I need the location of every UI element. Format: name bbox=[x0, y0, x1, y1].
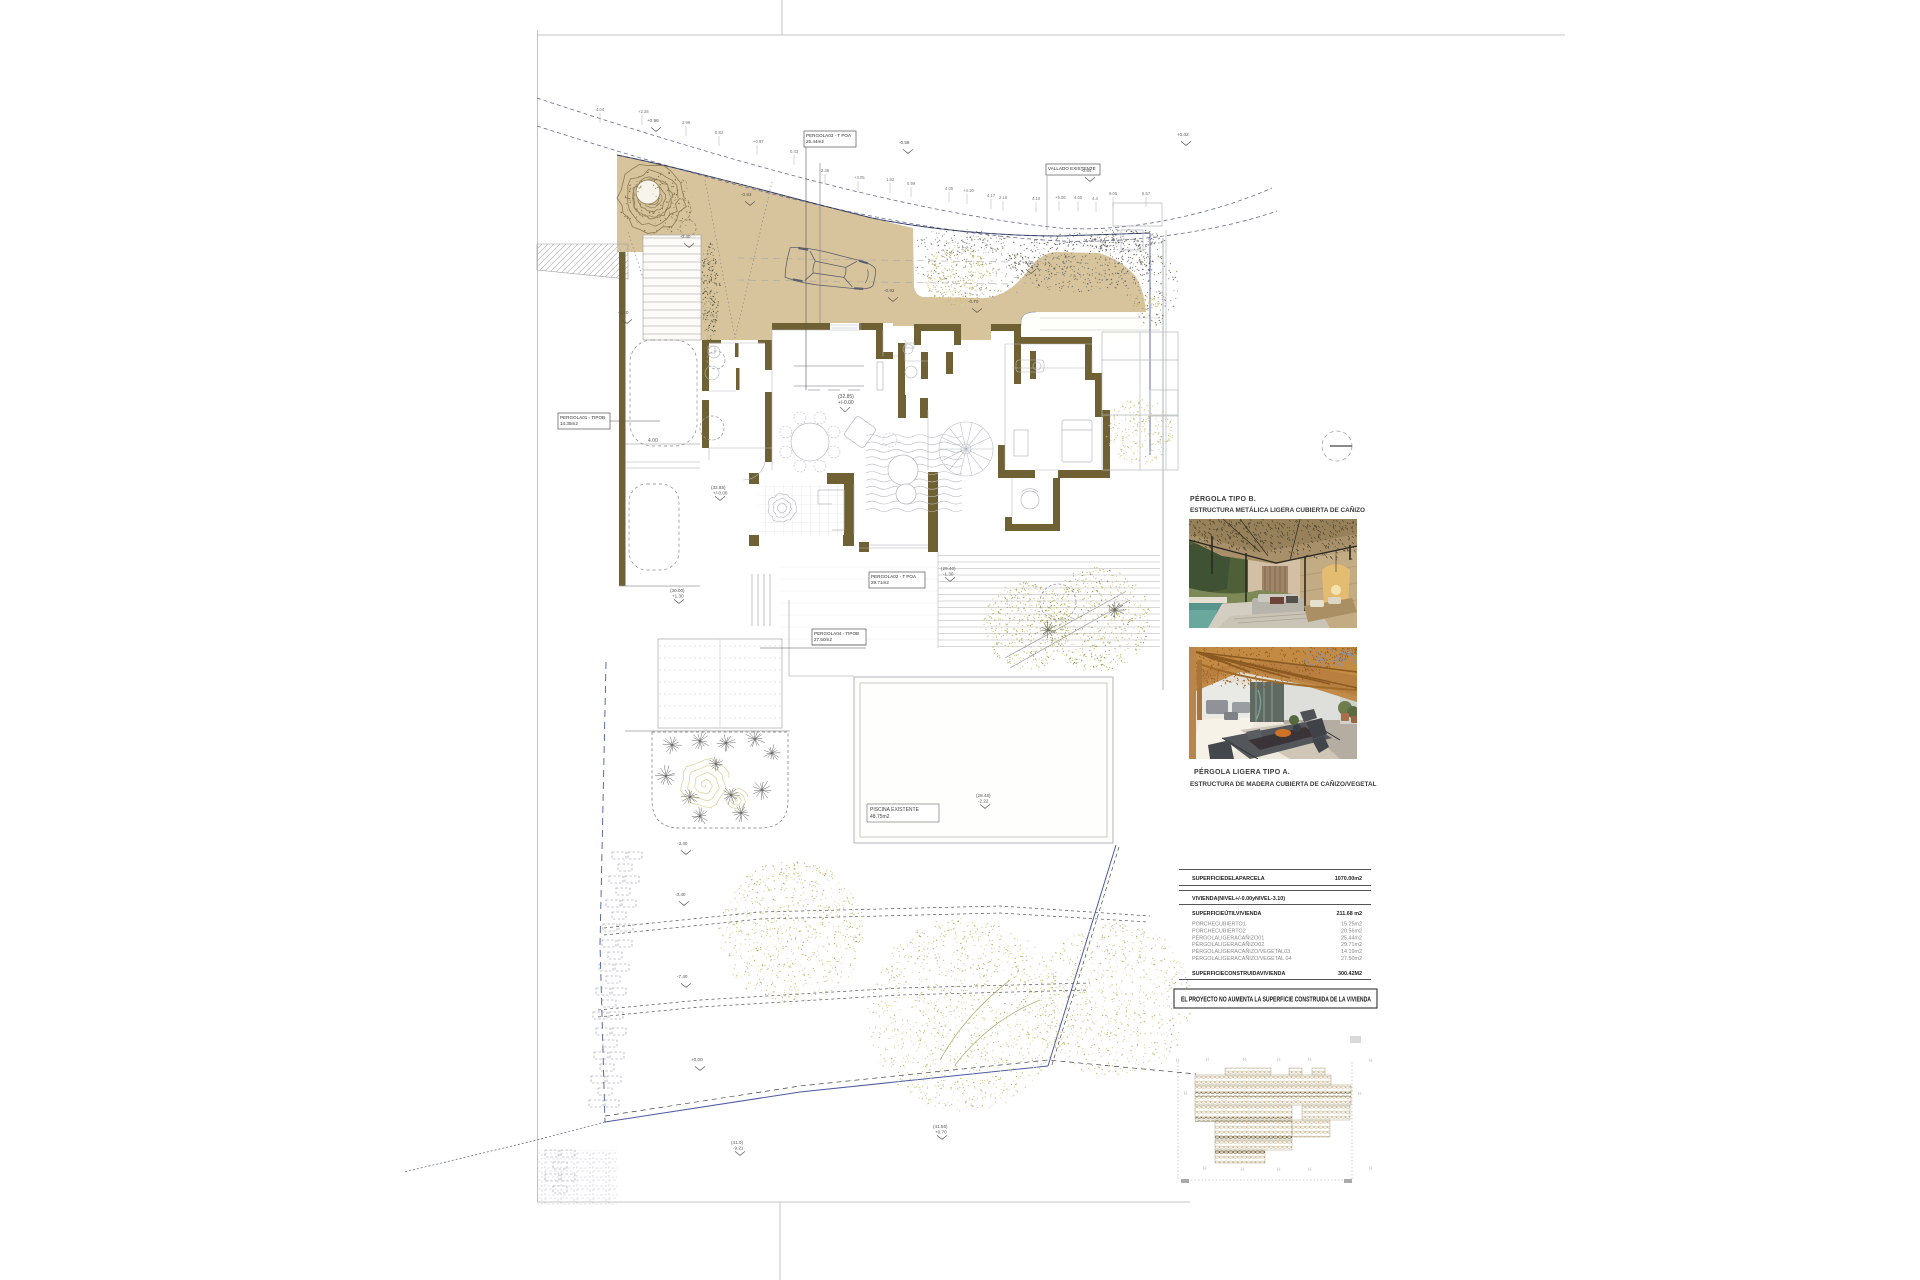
svg-text:SUPERFICIEDELAPARCELA: SUPERFICIEDELAPARCELA bbox=[1192, 876, 1265, 882]
svg-text:+0.05: +0.05 bbox=[1022, 260, 1034, 265]
svg-text:+0.00: +0.00 bbox=[691, 1057, 703, 1062]
svg-text:|-|: |-| bbox=[1203, 1165, 1206, 1170]
svg-text:2.96: 2.96 bbox=[682, 120, 691, 125]
svg-text:(41.55): (41.55) bbox=[933, 1124, 948, 1129]
svg-text:-9.21: -9.21 bbox=[733, 1145, 744, 1150]
svg-text:EL PROYECTO NO AUMENTA LA SUPE: EL PROYECTO NO AUMENTA LA SUPERFICIE CON… bbox=[1181, 997, 1371, 1004]
svg-text:(41.0): (41.0) bbox=[731, 1140, 743, 1145]
svg-text:-3.40: -3.40 bbox=[675, 892, 686, 897]
svg-text:PERGOLA01 - TIPOB: PERGOLA01 - TIPOB bbox=[560, 415, 605, 420]
svg-text:4.10: 4.10 bbox=[1032, 196, 1041, 201]
svg-text:+0.97: +0.97 bbox=[753, 139, 764, 144]
svg-text:27.50m2: 27.50m2 bbox=[1341, 956, 1362, 962]
svg-text:(28.48): (28.48) bbox=[976, 793, 991, 798]
svg-text:9.05: 9.05 bbox=[1109, 191, 1118, 196]
svg-text:+/-0.00: +/-0.00 bbox=[713, 490, 728, 495]
svg-text:15.25m2: 15.25m2 bbox=[1341, 922, 1362, 928]
svg-text:ESTRUCTURA DE MADERA CUBIERTA: ESTRUCTURA DE MADERA CUBIERTA DE CAÑIZO/… bbox=[1190, 779, 1377, 788]
svg-text:0.99: 0.99 bbox=[907, 181, 916, 186]
svg-text:1070.00m2: 1070.00m2 bbox=[1335, 876, 1362, 882]
svg-text:+1.30: +1.30 bbox=[672, 593, 684, 598]
svg-text:0.43: 0.43 bbox=[790, 149, 799, 154]
svg-text:29.71m2: 29.71m2 bbox=[1341, 942, 1362, 948]
svg-text:-0.53: -0.53 bbox=[741, 192, 752, 197]
svg-text:+4.05: +4.05 bbox=[854, 175, 865, 180]
svg-text:SUPERFICIEÚTILVIVIENDA: SUPERFICIEÚTILVIVIENDA bbox=[1192, 910, 1261, 917]
svg-text:48.75m2: 48.75m2 bbox=[870, 814, 890, 820]
svg-text:4.17: 4.17 bbox=[987, 193, 996, 198]
svg-text:|-|: |-| bbox=[1369, 1057, 1372, 1062]
svg-text:(29.40): (29.40) bbox=[941, 566, 956, 571]
svg-text:PERGOLA02 - T POA: PERGOLA02 - T POA bbox=[871, 574, 917, 579]
svg-text:PÉRGOLALIGERACAÑIZO01: PÉRGOLALIGERACAÑIZO01 bbox=[1192, 934, 1264, 941]
svg-text:-0.58: -0.58 bbox=[899, 140, 910, 145]
svg-text:+0.70: +0.70 bbox=[935, 1129, 947, 1134]
svg-text:+0.96: +0.96 bbox=[647, 118, 659, 123]
svg-text:PÉRGOLA TIPO B.: PÉRGOLA TIPO B. bbox=[1190, 494, 1256, 503]
svg-text:|-|: |-| bbox=[1206, 1056, 1209, 1061]
svg-text:2.16: 2.16 bbox=[999, 195, 1008, 200]
svg-text:27.50m2: 27.50m2 bbox=[814, 637, 832, 642]
svg-text:-1.30: -1.30 bbox=[943, 571, 954, 576]
svg-text:|-|: |-| bbox=[1243, 1056, 1246, 1061]
svg-text:|-|: |-| bbox=[1241, 1166, 1244, 1171]
svg-text:-0.54: -0.54 bbox=[1081, 168, 1092, 173]
svg-text:211.68 m2: 211.68 m2 bbox=[1337, 911, 1362, 917]
svg-text:PÉRGOLALIGERACAÑIZO/VEGETAL 04: PÉRGOLALIGERACAÑIZO/VEGETAL 04 bbox=[1192, 955, 1291, 962]
svg-text:300.42M2: 300.42M2 bbox=[1338, 971, 1362, 977]
svg-text:PORCHECUBIERTO1: PORCHECUBIERTO1 bbox=[1192, 922, 1246, 928]
svg-text:6.57: 6.57 bbox=[1142, 191, 1151, 196]
svg-text:PORCHECUBIERTO2: PORCHECUBIERTO2 bbox=[1192, 928, 1246, 934]
svg-text:-7.40: -7.40 bbox=[677, 974, 688, 979]
svg-text:PERGOLA04 - TIPOB: PERGOLA04 - TIPOB bbox=[814, 631, 859, 636]
svg-text:4.04: 4.04 bbox=[596, 107, 605, 112]
svg-text:25.44m2: 25.44m2 bbox=[806, 139, 824, 144]
svg-text:+2.28: +2.28 bbox=[638, 109, 649, 114]
svg-text:0.82: 0.82 bbox=[715, 130, 724, 135]
svg-text:-0.92: -0.92 bbox=[884, 288, 895, 293]
svg-text:|-|: |-| bbox=[1358, 1090, 1361, 1095]
svg-text:-0.70: -0.70 bbox=[968, 299, 979, 304]
svg-text:|-|: |-| bbox=[1184, 1090, 1187, 1095]
svg-text:-0.30: -0.30 bbox=[618, 310, 629, 315]
svg-text:PÉRGOLALIGERACAÑIZO/VEGETAL03: PÉRGOLALIGERACAÑIZO/VEGETAL03 bbox=[1192, 948, 1290, 955]
svg-text:PÉRGOLALIGERACAÑIZO02: PÉRGOLALIGERACAÑIZO02 bbox=[1192, 941, 1264, 948]
svg-text:+0.02: +0.02 bbox=[1177, 132, 1189, 137]
svg-text:(32.85): (32.85) bbox=[711, 485, 726, 490]
svg-text:+4.10: +4.10 bbox=[963, 188, 974, 193]
svg-text:|-|: |-| bbox=[1308, 1056, 1311, 1061]
svg-text:(30.00): (30.00) bbox=[670, 588, 685, 593]
svg-text:|-|: |-| bbox=[1176, 1057, 1179, 1062]
svg-text:VIVIENDA(NIVEL+/-0.00yNIVEL-3.: VIVIENDA(NIVEL+/-0.00yNIVEL-3.10) bbox=[1192, 896, 1285, 902]
svg-text:PÉRGOLA LIGERA TIPO A.: PÉRGOLA LIGERA TIPO A. bbox=[1194, 767, 1290, 776]
svg-text:+/-0.00: +/-0.00 bbox=[838, 400, 854, 406]
svg-text:PERGOLA03 - T POA: PERGOLA03 - T POA bbox=[806, 133, 852, 138]
svg-text:4.4: 4.4 bbox=[1092, 196, 1098, 201]
svg-text:PISCINA EXISTENTE: PISCINA EXISTENTE bbox=[870, 807, 920, 813]
svg-text:14.35m2: 14.35m2 bbox=[560, 421, 578, 426]
svg-text:|-|: |-| bbox=[1308, 1166, 1311, 1171]
svg-text:ESTRUCTURA METÁLICA LIGERA CUB: ESTRUCTURA METÁLICA LIGERA CUBIERTA DE C… bbox=[1190, 505, 1365, 514]
svg-text:SUPERFICIECONSTRUIDAVIVIENDA: SUPERFICIECONSTRUIDAVIVIENDA bbox=[1192, 971, 1285, 977]
svg-text:|-|: |-| bbox=[1369, 1165, 1372, 1170]
svg-text:|-|: |-| bbox=[1277, 1056, 1280, 1061]
svg-text:-3.40: -3.40 bbox=[677, 841, 688, 846]
svg-text:4.60: 4.60 bbox=[1074, 195, 1083, 200]
svg-text:20.56m2: 20.56m2 bbox=[1341, 928, 1362, 934]
svg-text:29.71m2: 29.71m2 bbox=[871, 580, 889, 585]
svg-text:4.05: 4.05 bbox=[945, 186, 954, 191]
svg-text:14.19m2: 14.19m2 bbox=[1341, 949, 1362, 955]
svg-text:1.82: 1.82 bbox=[886, 177, 895, 182]
svg-text:2.38: 2.38 bbox=[821, 168, 830, 173]
svg-text:|-|: |-| bbox=[1277, 1166, 1280, 1171]
svg-text:+5.06: +5.06 bbox=[1055, 195, 1066, 200]
svg-text:-2.22: -2.22 bbox=[978, 798, 989, 803]
svg-text:4.00: 4.00 bbox=[648, 438, 658, 444]
svg-text:25.44m2: 25.44m2 bbox=[1341, 935, 1362, 941]
svg-text:-0.40: -0.40 bbox=[680, 234, 691, 239]
